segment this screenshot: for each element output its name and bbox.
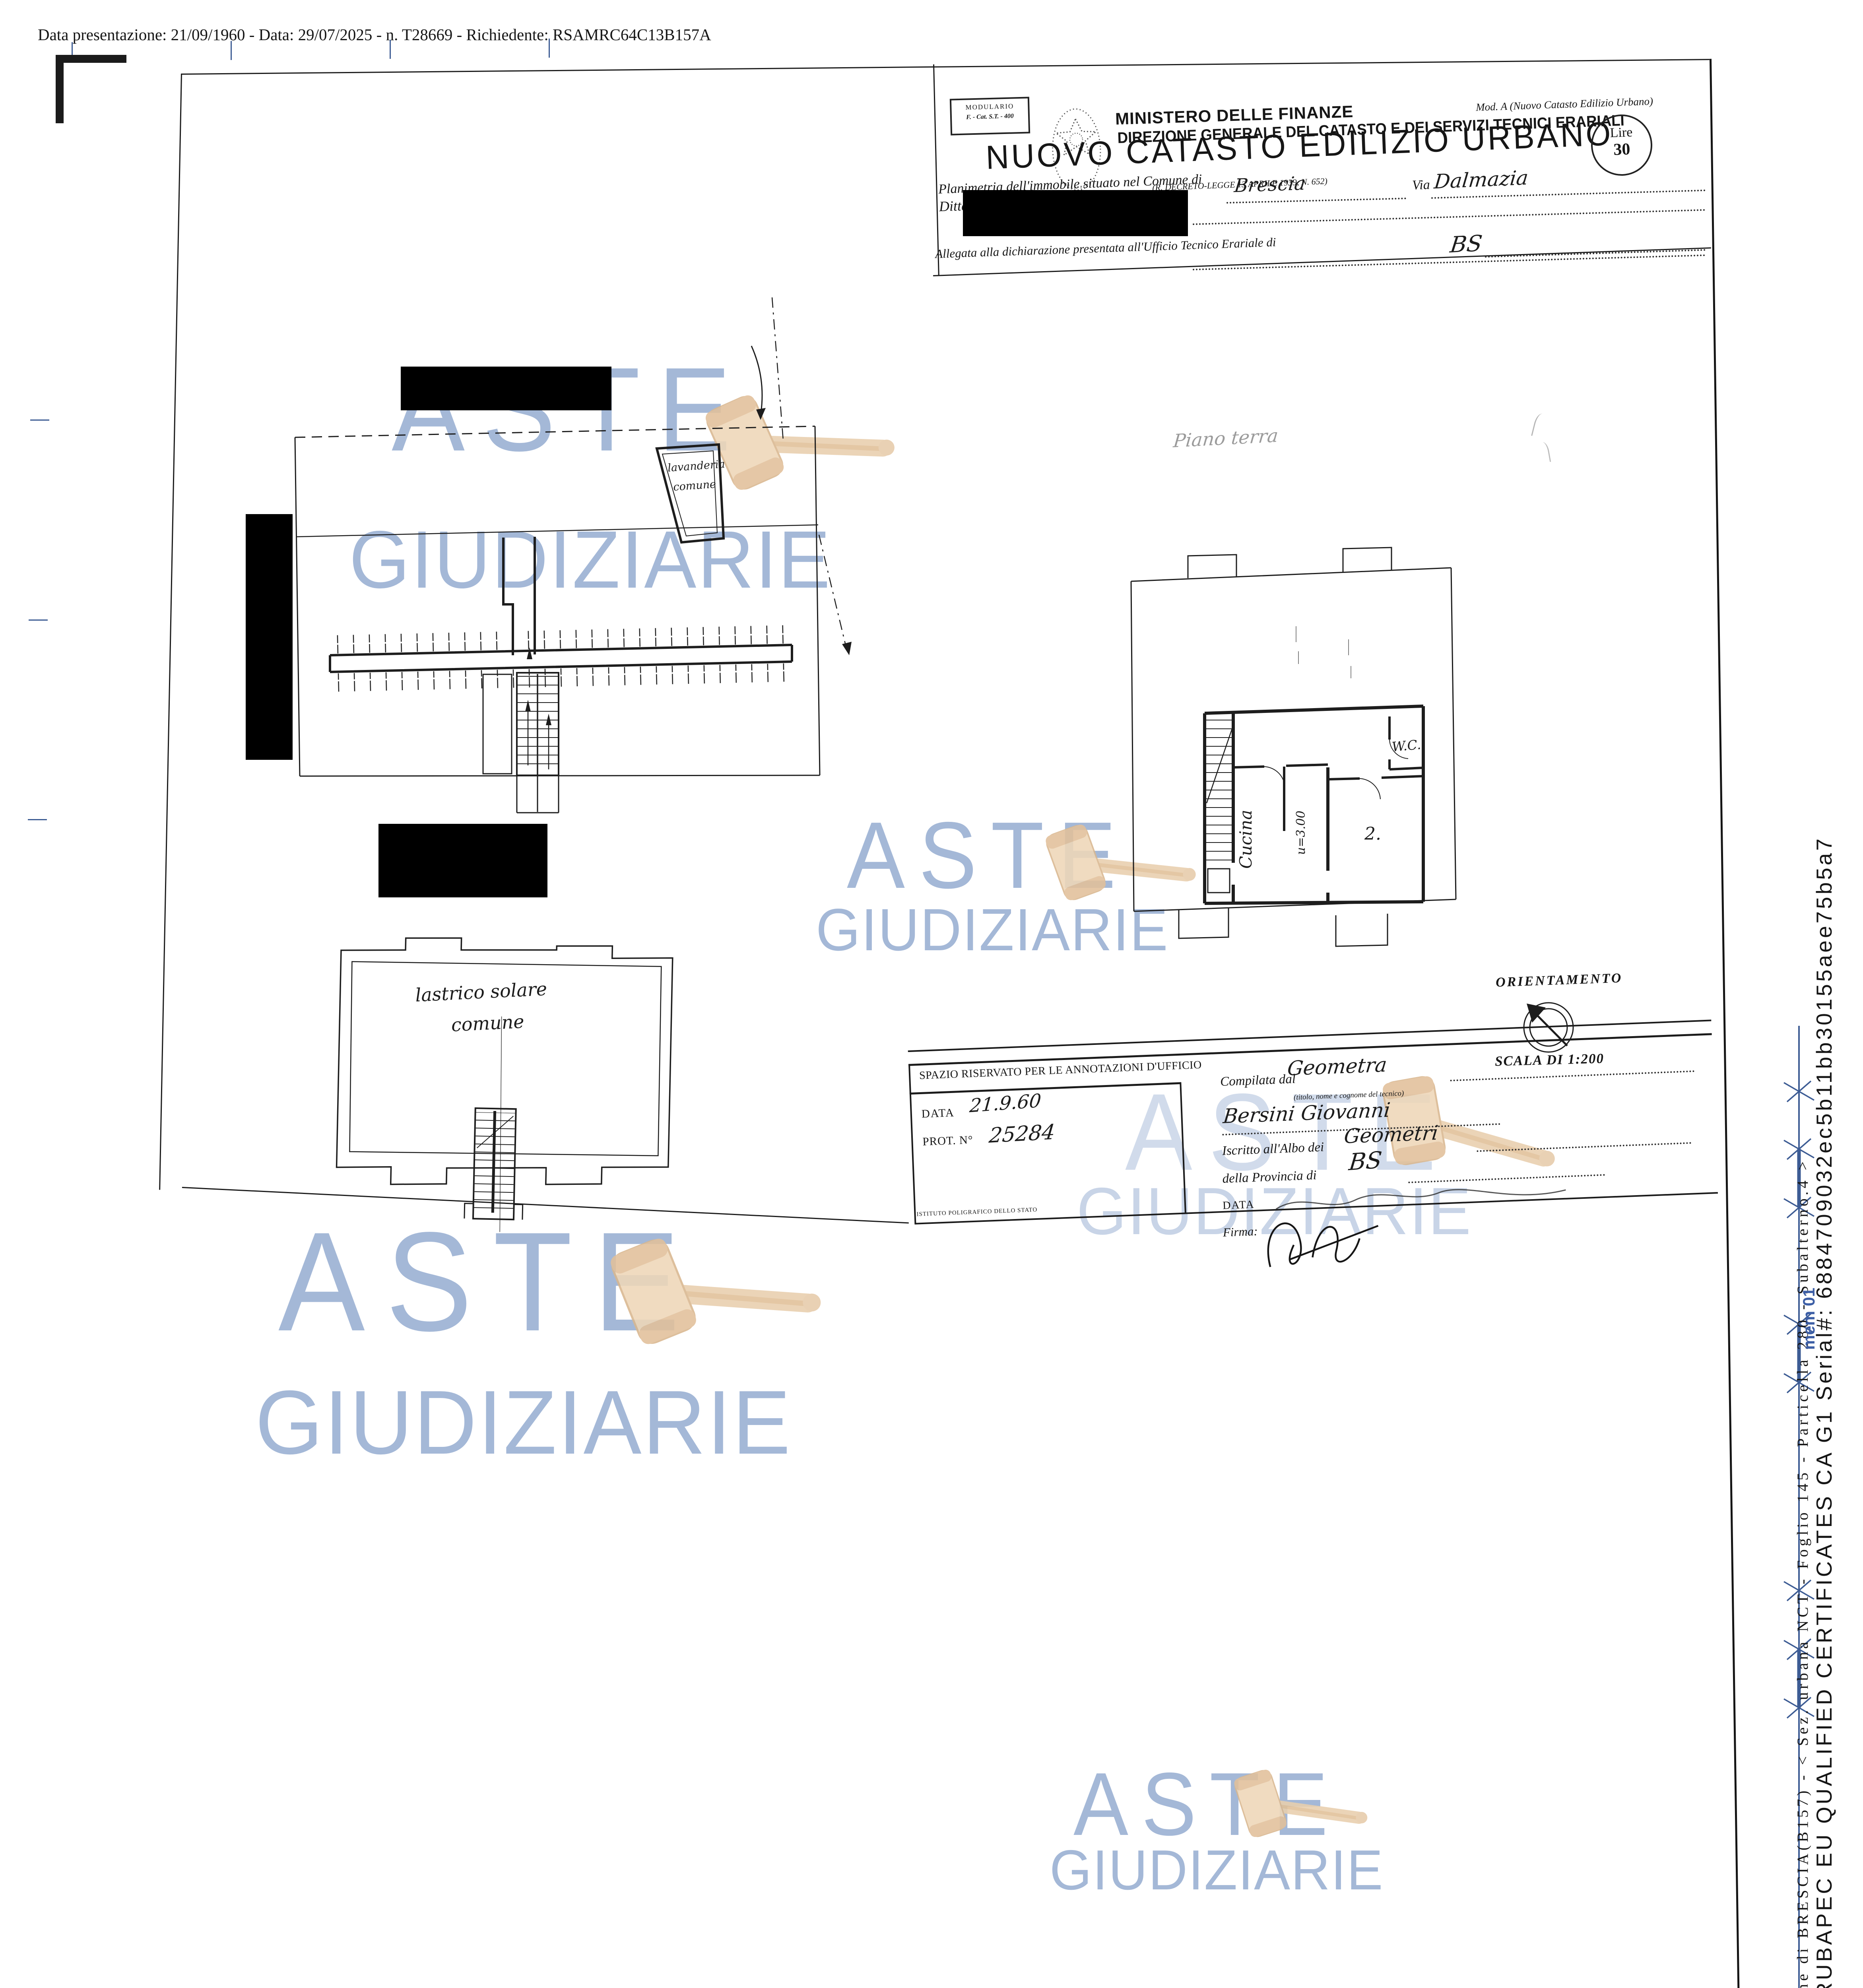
province-label: della Provincia di — [1222, 1169, 1317, 1186]
register-label: Iscritto all'Albo dei — [1222, 1140, 1324, 1158]
roof-label-line1: lastrico solare — [415, 978, 547, 1006]
roof-label-line2: comune — [451, 1011, 525, 1036]
redaction-box — [246, 514, 293, 760]
side-blue-mark: mem 01 — [1799, 1246, 1815, 1350]
kitchen-label: Cucina — [1236, 810, 1256, 869]
annotation-strip: SPAZIO RISERVATO PER LE ANNOTAZIONI D'UF… — [908, 1033, 1719, 1250]
laundry-label-line1: lavanderia — [667, 458, 725, 474]
redaction-box — [378, 824, 547, 897]
wc-label: W.C. — [1391, 737, 1421, 755]
sign-label: Firma: — [1223, 1225, 1258, 1239]
ground-floor-plan: Cucina u=3.00 W.C. 2. — [1105, 410, 1638, 974]
office-data-value: 21.9.60 — [969, 1091, 1042, 1116]
province-value: BS — [1348, 1148, 1383, 1175]
compiled-value: Geometra — [1286, 1054, 1388, 1079]
printer-note: ISTITUTO POLIGRAFICO DELLO STATO — [916, 1207, 1037, 1218]
side-signature-line: Firmato Da: MARCO AROSIO Emesso Da: ARUB… — [1811, 1044, 1836, 1988]
redaction-box — [963, 190, 1188, 236]
scanned-cadastral-document: Data presentazione: 21/09/1960 - Data: 2… — [0, 0, 1863, 1988]
compiled-label: Compilata dal — [1220, 1072, 1296, 1089]
room2-label: 2. — [1364, 824, 1381, 844]
redaction-box — [401, 367, 611, 410]
height-note: u=3.00 — [1294, 811, 1308, 855]
roof-terrace-plan: lastrico solare comune — [326, 922, 704, 1344]
office-prot-value: 25284 — [988, 1121, 1056, 1147]
laundry-label-line2: comune — [673, 478, 716, 493]
office-data-label: DATA — [921, 1107, 955, 1120]
basement-floor-plan: lavanderia comune — [235, 278, 879, 843]
surveyor-name: Bersini Giovanni — [1222, 1099, 1391, 1127]
dotted-rule — [1477, 1142, 1691, 1152]
office-prot-label: PROT. N° — [922, 1134, 973, 1148]
gavel-icon — [1216, 1758, 1372, 1873]
office-divider — [1180, 1082, 1186, 1213]
office-title-underline — [910, 1082, 1181, 1095]
side-cadastre-line: Catasto dei Fabbricati - Situazione al 2… — [1794, 1042, 1813, 1988]
surveyor-date-label: DATA — [1223, 1199, 1255, 1211]
register-value: Geometri — [1343, 1122, 1439, 1147]
dotted-rule — [1450, 1070, 1695, 1081]
signature-scribble — [1254, 1187, 1428, 1285]
